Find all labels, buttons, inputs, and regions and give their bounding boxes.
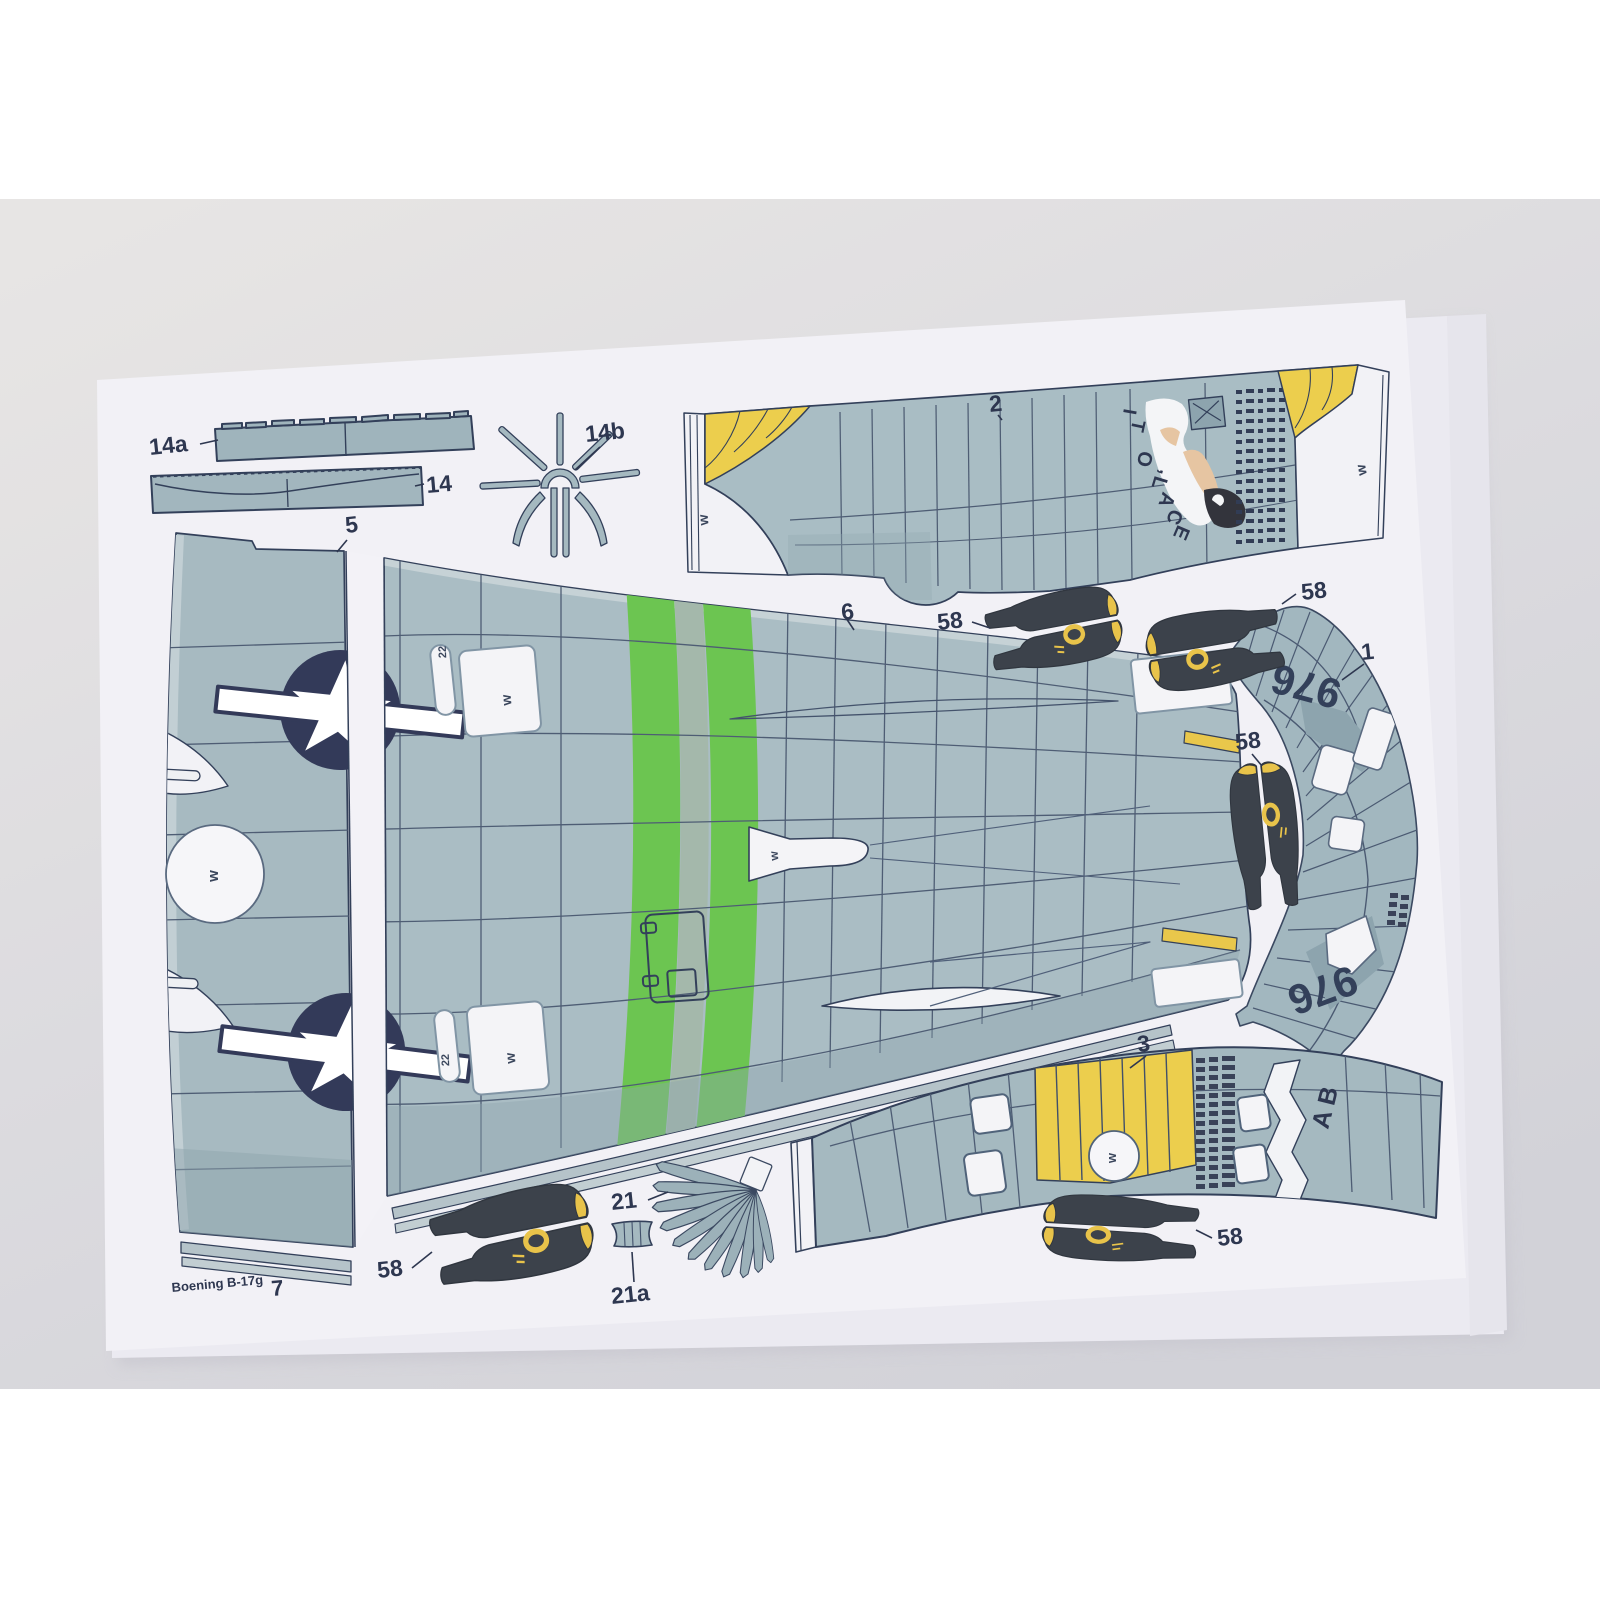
svg-text:7: 7 [270, 1275, 284, 1301]
svg-text:w: w [767, 850, 782, 862]
svg-text:14: 14 [425, 470, 453, 498]
svg-text:w: w [502, 1052, 519, 1065]
svg-text:21a: 21a [610, 1279, 651, 1309]
svg-text:14a: 14a [148, 430, 189, 460]
svg-text:58: 58 [936, 606, 964, 635]
svg-text:w: w [695, 514, 712, 527]
svg-text:58: 58 [1234, 726, 1262, 755]
svg-text:w: w [498, 694, 515, 707]
svg-text:14b: 14b [584, 417, 626, 447]
svg-text:58: 58 [1300, 576, 1328, 605]
svg-text:58: 58 [1216, 1222, 1244, 1251]
svg-text:2: 2 [988, 390, 1003, 417]
svg-text:22: 22 [440, 1054, 452, 1067]
svg-text:w: w [205, 870, 222, 883]
svg-text:w: w [1104, 1152, 1119, 1164]
svg-text:21: 21 [610, 1186, 638, 1215]
svg-text:3: 3 [1136, 1030, 1151, 1057]
svg-text:58: 58 [376, 1254, 404, 1283]
svg-text:22: 22 [437, 646, 449, 659]
